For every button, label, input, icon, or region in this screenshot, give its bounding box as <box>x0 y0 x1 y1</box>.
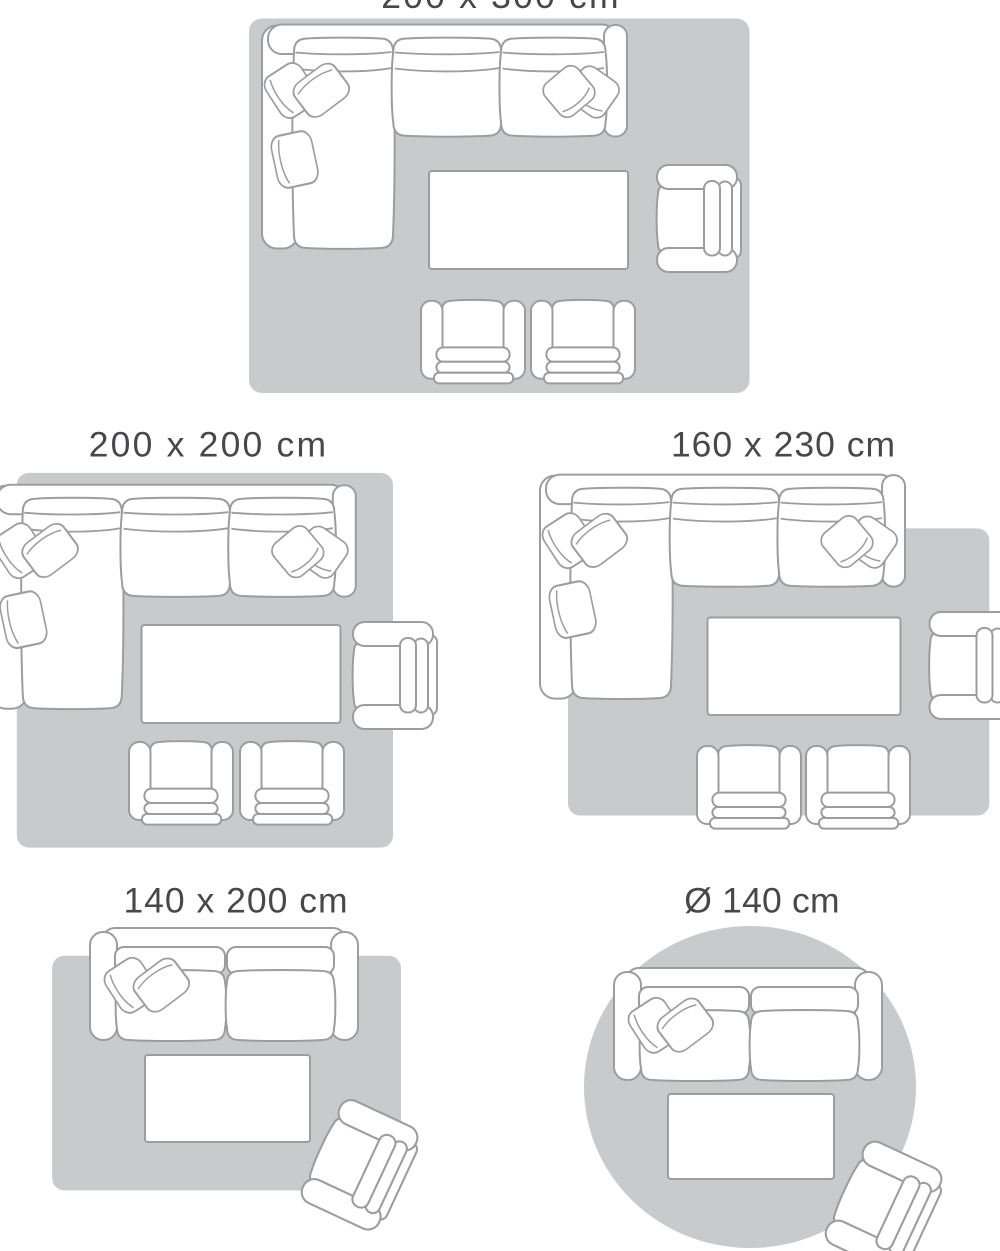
svg-text:160 x 230 cm: 160 x 230 cm <box>671 424 896 464</box>
svg-text:140 x 200 cm: 140 x 200 cm <box>123 880 348 920</box>
svg-text:200 x 300 cm: 200 x 300 cm <box>381 0 621 16</box>
svg-text:Ø 140 cm: Ø 140 cm <box>684 880 840 920</box>
svg-text:200 x 200 cm: 200 x 200 cm <box>89 424 329 464</box>
